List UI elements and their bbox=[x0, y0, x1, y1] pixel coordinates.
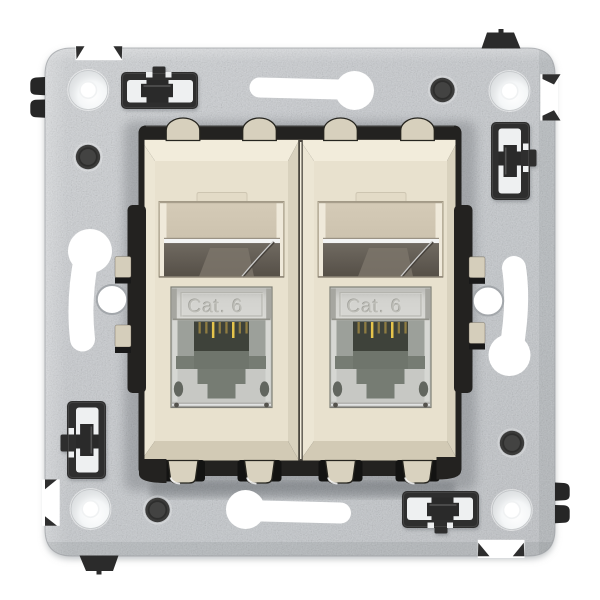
svg-text:Cat. 6: Cat. 6 bbox=[188, 297, 244, 318]
